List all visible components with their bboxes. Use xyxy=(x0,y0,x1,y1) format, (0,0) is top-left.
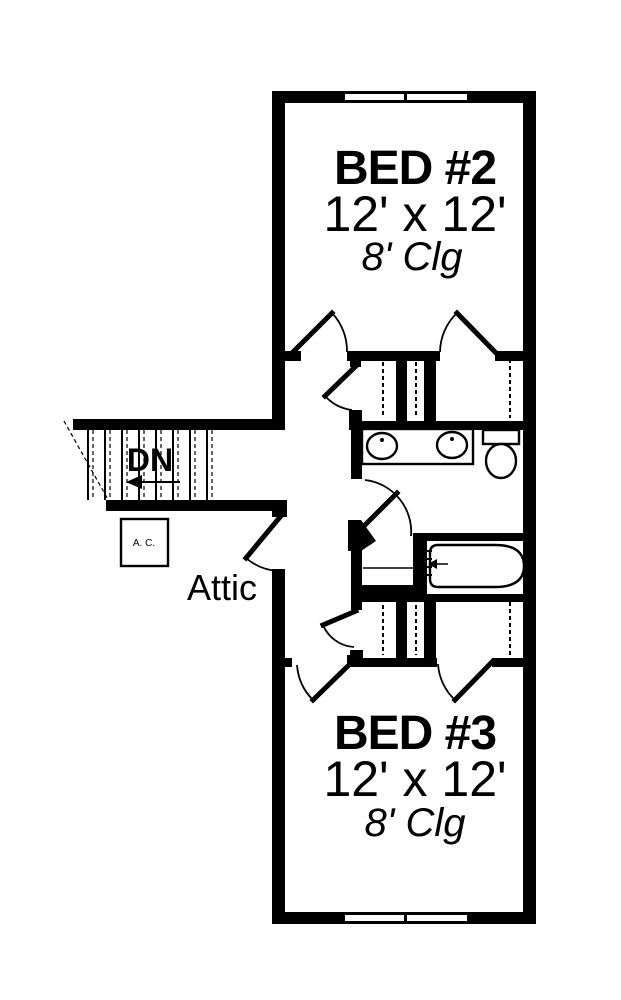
bed3-ceiling: 8' Clg xyxy=(364,801,465,845)
vanity-sink-right xyxy=(437,432,467,458)
toilet-tank xyxy=(483,430,519,444)
bed3-wall-right xyxy=(492,658,523,667)
vanity-sink-left-drain xyxy=(380,438,384,442)
bathroom-door-leaf xyxy=(354,493,397,536)
wall-left-upper xyxy=(272,91,285,430)
vanity-sink-left xyxy=(367,433,397,459)
bathroom-door-arc xyxy=(365,480,411,536)
attic-label: Attic xyxy=(187,567,257,608)
hall-closet-lower-jamb-top xyxy=(351,594,362,610)
bed2-ceiling: 8' Clg xyxy=(361,235,462,279)
bathroom-fixtures xyxy=(362,429,524,587)
bed3-entry-door-leaf xyxy=(313,662,352,700)
attic-area: A. C. Attic xyxy=(121,519,257,608)
room-labels: BED #2 12' x 12' 8' Clg BED #3 12' x 12'… xyxy=(323,142,506,845)
bed2-entry-door-leaf xyxy=(293,313,332,352)
hall-closet-upper-door-leaf xyxy=(325,367,355,396)
bed3-entry-door-arc xyxy=(297,665,313,700)
hall-closet-upper-door-arc xyxy=(325,396,352,410)
wall-right xyxy=(523,91,536,924)
closet-band-upper-partition-2 xyxy=(424,357,436,422)
bed3-dimensions: 12' x 12' xyxy=(323,751,506,807)
wall-left-lower xyxy=(272,569,285,924)
vanity-sink-right-drain xyxy=(450,437,454,441)
closet-band-lower-partition-1 xyxy=(396,602,407,658)
toilet-bowl xyxy=(486,444,516,478)
floor-plan-drawing: DN xyxy=(0,0,621,1000)
interior-walls xyxy=(272,351,523,667)
bed2-dimensions: 12' x 12' xyxy=(323,186,506,242)
bathtub xyxy=(430,545,524,587)
attic-door-leaf xyxy=(246,517,280,558)
closet-band-lower-partition-2 xyxy=(424,602,436,658)
closet-band-lower-top-wall xyxy=(351,594,523,602)
stair-hall-wall-top xyxy=(73,419,285,430)
bed2-closet-door-leaf xyxy=(457,313,495,352)
bath-left-wall xyxy=(351,430,362,479)
tub-top-wall xyxy=(413,533,523,541)
bed3-wall-left-stub xyxy=(272,658,292,667)
linen-bottom-wall xyxy=(351,585,422,594)
bed2-entry-door-arc xyxy=(332,313,347,352)
bed3-wall-center xyxy=(360,658,437,667)
hall-closet-lower-door-arc xyxy=(323,625,354,647)
floor-plan-page: DN xyxy=(0,0,621,1000)
window-bed3-mullion xyxy=(404,915,407,921)
bed2-closet-door-arc xyxy=(440,313,457,352)
closet-band-upper-partition-1 xyxy=(396,357,407,422)
bed3-closet-door-leaf xyxy=(455,662,492,700)
bed3-closet-door-arc xyxy=(438,664,455,700)
staircase: DN xyxy=(64,421,212,503)
window-bed2-mullion xyxy=(404,94,407,100)
stair-hall-wall-bottom xyxy=(106,500,285,511)
hall-closet-lower-door-leaf xyxy=(323,611,356,625)
stairs-dn-label: DN xyxy=(127,442,173,478)
ac-unit-label: A. C. xyxy=(133,538,155,549)
